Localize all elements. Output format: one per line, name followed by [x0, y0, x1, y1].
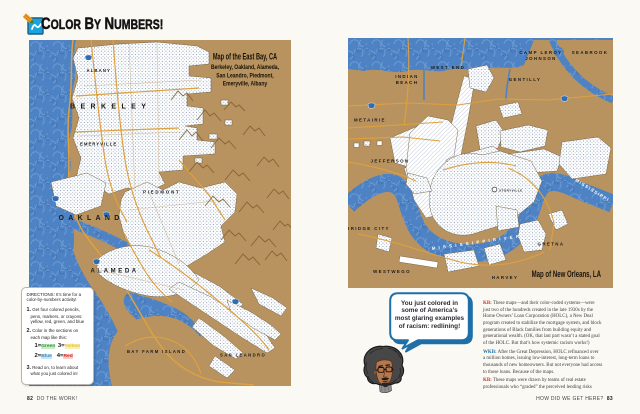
- svg-text:ALBANY: ALBANY: [87, 68, 112, 73]
- svg-text:EMERYVILLE: EMERYVILLE: [80, 142, 117, 147]
- svg-text:OAKLAND: OAKLAND: [59, 215, 124, 222]
- svg-text:BAY FARM ISLAND: BAY FARM ISLAND: [127, 349, 186, 354]
- svg-text:GENTILLY: GENTILLY: [509, 77, 542, 82]
- svg-text:HARVEY: HARVEY: [492, 275, 519, 280]
- svg-text:STORYVILLE: STORYVILLE: [499, 188, 523, 192]
- svg-text:Map of New Orleans, LA: Map of New Orleans, LA: [532, 269, 602, 280]
- svg-text:JEFFERSON: JEFFERSON: [371, 159, 410, 164]
- svg-text:Berkeley, Oakland, Alameda,: Berkeley, Oakland, Alameda,: [211, 65, 279, 72]
- svg-text:SAN LEANDRO: SAN LEANDRO: [220, 353, 266, 358]
- svg-text:INDIAN: INDIAN: [395, 74, 419, 79]
- svg-text:GRETNA: GRETNA: [538, 242, 565, 247]
- svg-text:Emeryville, Albany: Emeryville, Albany: [223, 81, 268, 88]
- svg-text:BRIDGE CITY: BRIDGE CITY: [348, 226, 390, 231]
- svg-text:PIEDMONT: PIEDMONT: [143, 190, 180, 195]
- svg-text:SEABROOK: SEABROOK: [572, 50, 609, 55]
- svg-text:BERKELEY: BERKELEY: [70, 104, 151, 111]
- svg-text:ALAMEDA: ALAMEDA: [91, 269, 139, 275]
- svg-text:Map of the East Bay, CA: Map of the East Bay, CA: [213, 51, 278, 62]
- svg-text:WEST END: WEST END: [431, 65, 465, 70]
- svg-text:JOHNSON: JOHNSON: [525, 56, 557, 61]
- svg-text:CAMP LEROY: CAMP LEROY: [519, 50, 562, 55]
- svg-text:METAIRIE: METAIRIE: [354, 118, 386, 123]
- svg-text:WESTWEGO: WESTWEGO: [373, 269, 411, 274]
- svg-text:San Leandro, Piedmont,: San Leandro, Piedmont,: [216, 73, 274, 80]
- svg-text:BEACH: BEACH: [396, 80, 419, 85]
